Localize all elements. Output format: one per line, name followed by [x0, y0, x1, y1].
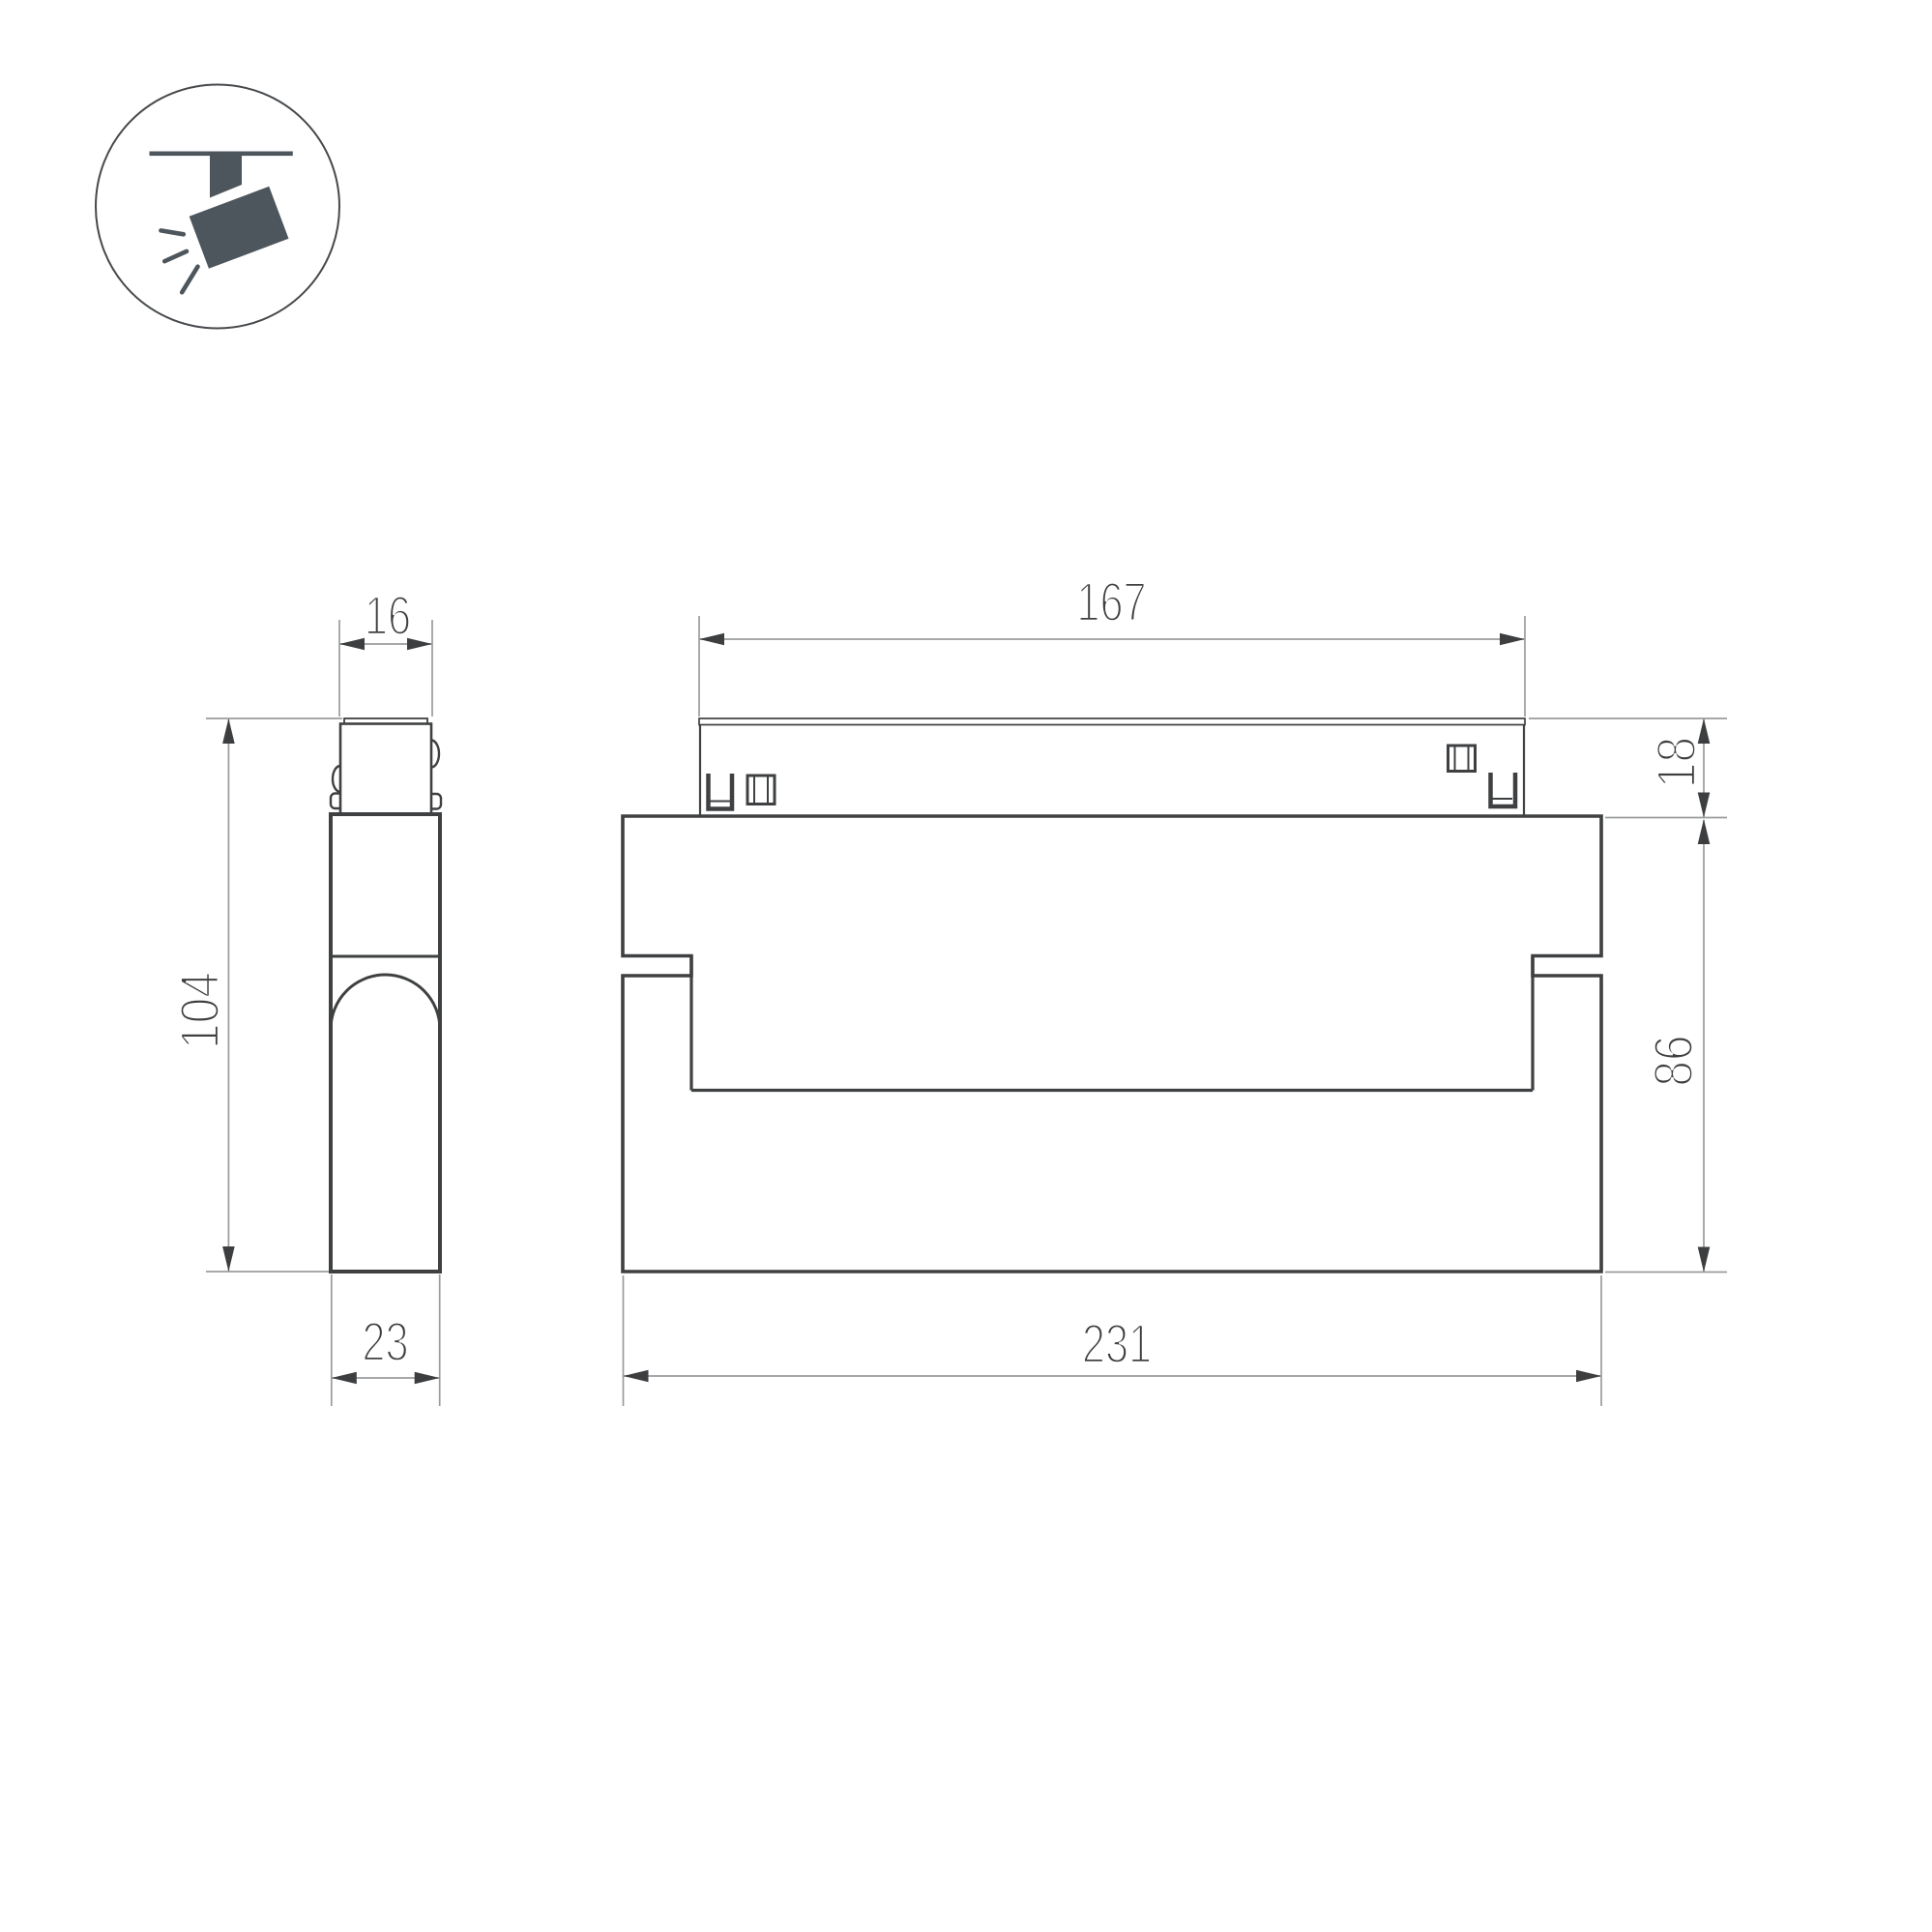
svg-text:104: 104 — [169, 972, 231, 1049]
svg-text:18: 18 — [1646, 737, 1708, 788]
svg-text:231: 231 — [1082, 1312, 1152, 1374]
svg-text:23: 23 — [362, 1310, 408, 1372]
svg-text:16: 16 — [365, 584, 411, 646]
svg-text:167: 167 — [1076, 571, 1146, 632]
svg-text:86: 86 — [1643, 1035, 1705, 1086]
